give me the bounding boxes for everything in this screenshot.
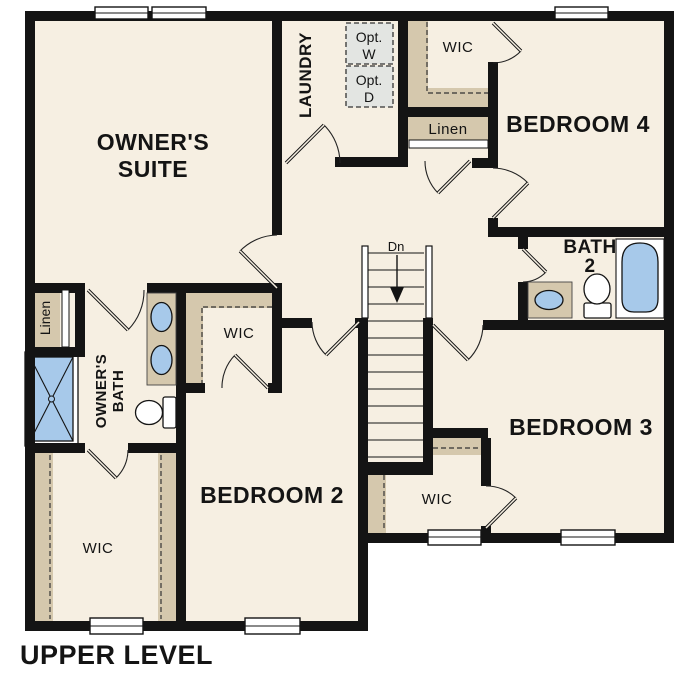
wall-exterior-right bbox=[664, 11, 674, 543]
wic-middle-left-shelf bbox=[186, 308, 203, 383]
wall-exterior-left bbox=[25, 11, 35, 631]
wall-exterior-bottom-left bbox=[25, 621, 368, 631]
page-title: UPPER LEVEL bbox=[20, 640, 213, 670]
wall-exterior-bottom-right bbox=[358, 533, 674, 543]
room-label-laundry: LAUNDRY bbox=[296, 32, 315, 118]
stairs-down-label: Dn bbox=[388, 239, 405, 254]
double-vanity-owners-bath bbox=[147, 293, 176, 385]
window bbox=[90, 618, 143, 634]
wall-stairs-right bbox=[423, 318, 433, 475]
wall-owners-suite-right bbox=[272, 11, 282, 235]
shower-drain bbox=[49, 396, 55, 402]
wall-bedroom2-top-a bbox=[282, 318, 312, 328]
room-label-owners-bath-line1: OWNER'S bbox=[93, 354, 110, 429]
wall-wic-middle-right bbox=[272, 288, 282, 393]
room-label-wic-bedroom3: WIC bbox=[422, 491, 453, 508]
room-label-wic-bottomleft: WIC bbox=[83, 540, 114, 557]
window bbox=[428, 530, 481, 545]
wall-owners-suite-bottom-b bbox=[147, 283, 282, 293]
room-label-owners-bath-line2: BATH bbox=[110, 370, 127, 413]
wall-laundry-bottom bbox=[335, 157, 408, 167]
sink bbox=[151, 303, 172, 332]
wall-shower-linen-divider bbox=[25, 347, 85, 357]
room-label-bath2-line2: 2 bbox=[584, 256, 595, 277]
floor-plan-page: OWNER'S SUITE LAUNDRY Opt. W Opt. D WIC … bbox=[0, 0, 687, 687]
sink bbox=[535, 291, 563, 310]
window bbox=[245, 618, 300, 634]
wall-owners-bath-bottom-b bbox=[128, 443, 186, 453]
wall-stairs-bottom bbox=[358, 462, 433, 475]
wic-bedroom3-shelf bbox=[433, 438, 481, 455]
room-label-bedroom4: BEDROOM 4 bbox=[506, 111, 650, 137]
wall-bedroom3-top bbox=[483, 320, 674, 330]
optional-washer-label-line1: Opt. bbox=[356, 29, 382, 45]
wall-wic-middle-bottom-b bbox=[268, 383, 282, 393]
wall-wic-middle-bottom-a bbox=[176, 383, 205, 393]
room-label-bedroom3: BEDROOM 3 bbox=[509, 414, 653, 440]
room-label-bath2-line1: BATH bbox=[563, 237, 616, 258]
bathtub-bath2 bbox=[616, 239, 664, 318]
wall-bedroom4-bottom bbox=[488, 227, 674, 237]
room-label-wic-middle: WIC bbox=[224, 325, 255, 342]
wic-top-left-shelf bbox=[408, 21, 428, 107]
wall-wic-top-bottom bbox=[398, 107, 488, 117]
vanity-bath2 bbox=[528, 282, 572, 318]
stair-rail-right bbox=[426, 246, 432, 318]
wall-wic-bedroom3-right bbox=[481, 438, 491, 486]
room-label-linen-left: Linen bbox=[37, 301, 53, 335]
wall-bedroom4-left-a bbox=[488, 62, 498, 168]
wic-top-bottom-shelf bbox=[428, 88, 488, 107]
wall-bath2-left-stub bbox=[518, 237, 528, 249]
wic-bedroom3-left-shelf bbox=[368, 475, 386, 533]
sink bbox=[151, 346, 172, 375]
optional-dryer-label-line1: Opt. bbox=[356, 72, 382, 88]
wic-middle-top-shelf bbox=[186, 293, 272, 308]
window bbox=[95, 7, 148, 19]
linen-top-door-panel bbox=[409, 140, 488, 148]
wall-laundry-wic-divider bbox=[398, 11, 408, 167]
toilet-bath2 bbox=[584, 274, 611, 318]
wall-wic-bedroom3-top bbox=[423, 428, 488, 438]
room-label-wic-top: WIC bbox=[443, 39, 474, 56]
room-label-owners-suite-line2: SUITE bbox=[118, 156, 188, 182]
stair-rail-left bbox=[362, 246, 368, 318]
wall-owners-bath-bottom-a bbox=[25, 443, 85, 453]
optional-washer-label-line2: W bbox=[362, 46, 376, 62]
optional-dryer-label-line2: D bbox=[364, 89, 374, 105]
window bbox=[152, 7, 206, 19]
room-label-linen-top: Linen bbox=[428, 121, 467, 138]
room-label-bedroom2: BEDROOM 2 bbox=[200, 482, 344, 508]
floor-plan-drawing: OWNER'S SUITE LAUNDRY Opt. W Opt. D WIC … bbox=[0, 0, 687, 687]
window bbox=[555, 7, 608, 19]
linen-left-door-panel bbox=[62, 290, 69, 347]
room-label-owners-suite-line1: OWNER'S bbox=[97, 129, 209, 155]
wall-linen-left-stub bbox=[75, 283, 85, 352]
window bbox=[561, 530, 615, 545]
